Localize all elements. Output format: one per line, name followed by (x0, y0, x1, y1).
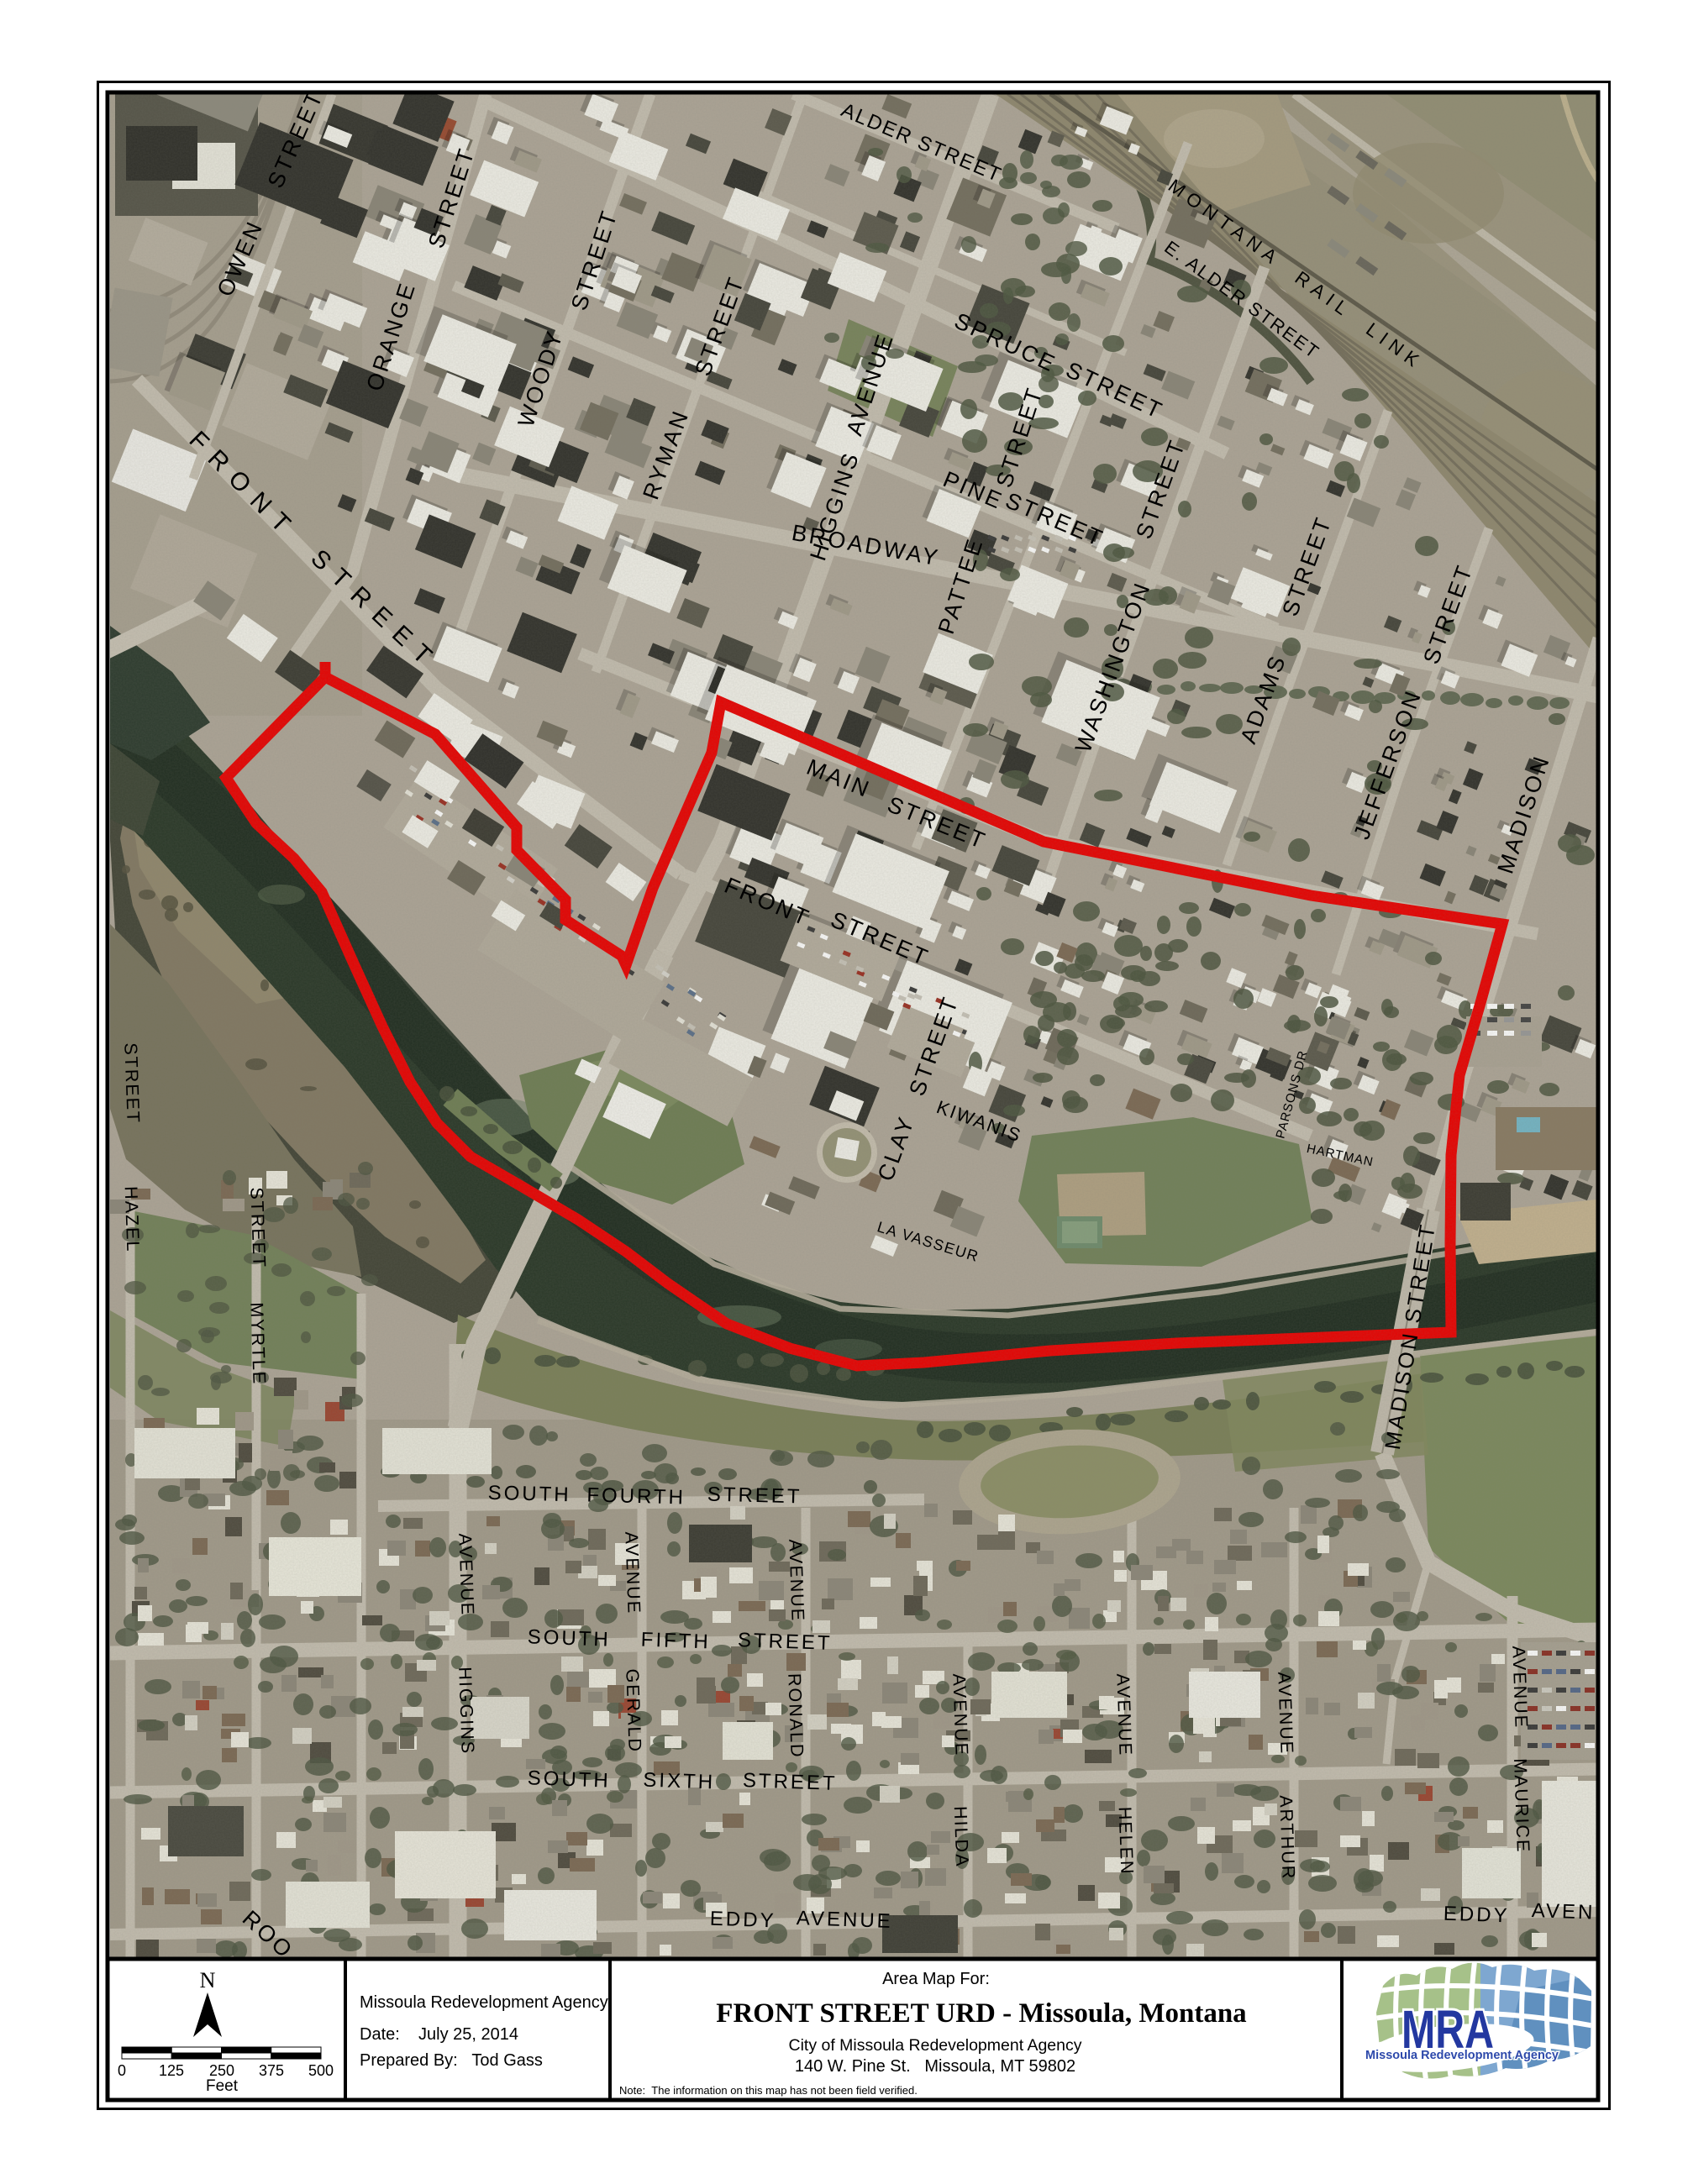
svg-text:AVENUE: AVENUE (1112, 1673, 1135, 1757)
svg-text:STREET: STREET (246, 1187, 269, 1269)
svg-text:STREET: STREET (742, 1769, 838, 1795)
svg-text:AVENUE: AVENUE (1508, 1646, 1531, 1730)
svg-text:FOURTH: FOURTH (586, 1483, 686, 1509)
svg-text:EDDY: EDDY (709, 1908, 776, 1933)
svg-text:MAURICE: MAURICE (1510, 1758, 1533, 1854)
svg-text:FIFTH: FIFTH (640, 1629, 711, 1654)
svg-text:AVENUE: AVENUE (949, 1673, 971, 1757)
svg-text:250: 250 (209, 2062, 234, 2079)
svg-text:375: 375 (259, 2062, 284, 2079)
svg-text:HELEN: HELEN (1115, 1807, 1138, 1876)
svg-text:HILDA: HILDA (950, 1806, 973, 1868)
svg-text:AVENUE: AVENUE (455, 1533, 477, 1617)
svg-text:0: 0 (118, 2062, 126, 2079)
svg-text:AVENUE: AVENUE (796, 1907, 893, 1933)
svg-text:City of Missoula Redevelopment: City of Missoula Redevelopment Agency (788, 2036, 1081, 2055)
svg-text:125: 125 (159, 2062, 184, 2079)
svg-text:AVENUE: AVENUE (621, 1531, 644, 1615)
svg-text:GERALD: GERALD (622, 1668, 644, 1753)
svg-text:Date: July 25, 2014: Date: July 25, 2014 (360, 2025, 518, 2044)
svg-text:Missoula Redevelopment Agency: Missoula Redevelopment Agency (1365, 2049, 1559, 2062)
svg-text:N: N (200, 1968, 216, 1992)
svg-text:HAZEL: HAZEL (121, 1186, 144, 1253)
svg-text:HIGGINS: HIGGINS (455, 1667, 478, 1756)
svg-text:Prepared By: Tod Gass: Prepared By: Tod Gass (360, 2051, 543, 2070)
svg-text:EDDY: EDDY (1443, 1903, 1510, 1928)
svg-text:Feet: Feet (206, 2077, 239, 2095)
svg-text:STREET: STREET (737, 1629, 833, 1655)
svg-text:Area Map For:: Area Map For: (882, 1970, 990, 1988)
svg-text:Missoula Redevelopment Agency: Missoula Redevelopment Agency (360, 1993, 608, 2012)
svg-text:Note: The information on this: Note: The information on this map has no… (619, 2084, 918, 2097)
svg-text:SOUTH: SOUTH (527, 1767, 611, 1792)
svg-text:MYRTLE: MYRTLE (246, 1302, 269, 1386)
svg-text:500: 500 (308, 2062, 334, 2079)
svg-text:SOUTH: SOUTH (527, 1625, 611, 1651)
svg-text:SOUTH: SOUTH (487, 1482, 571, 1507)
svg-text:RONALD: RONALD (784, 1673, 807, 1759)
svg-text:STREET: STREET (120, 1042, 143, 1125)
svg-text:140 W. Pine St. Missoula, MT: 140 W. Pine St. Missoula, MT 59802 (795, 2057, 1075, 2076)
svg-text:AVENUE: AVENUE (785, 1539, 807, 1623)
svg-text:SIXTH: SIXTH (643, 1769, 716, 1794)
svg-text:AVENUE: AVENUE (1274, 1672, 1296, 1756)
svg-text:FRONT STREET URD - Missoula, M: FRONT STREET URD - Missoula, Montana (716, 1998, 1246, 2029)
svg-text:STREET: STREET (707, 1483, 802, 1509)
svg-text:ARTHUR: ARTHUR (1275, 1795, 1299, 1881)
